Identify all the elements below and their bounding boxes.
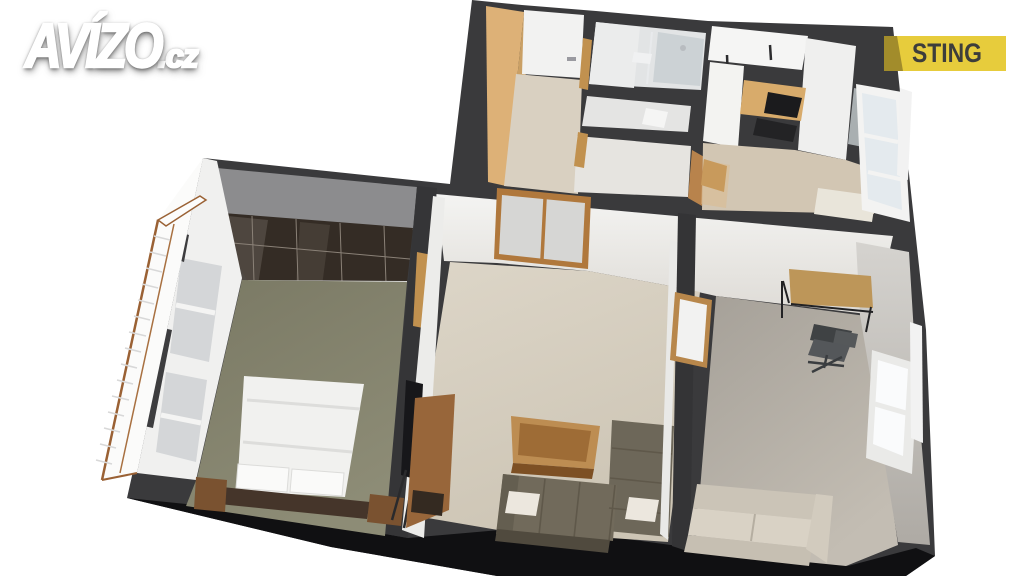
svg-text:STING: STING [912,38,982,68]
